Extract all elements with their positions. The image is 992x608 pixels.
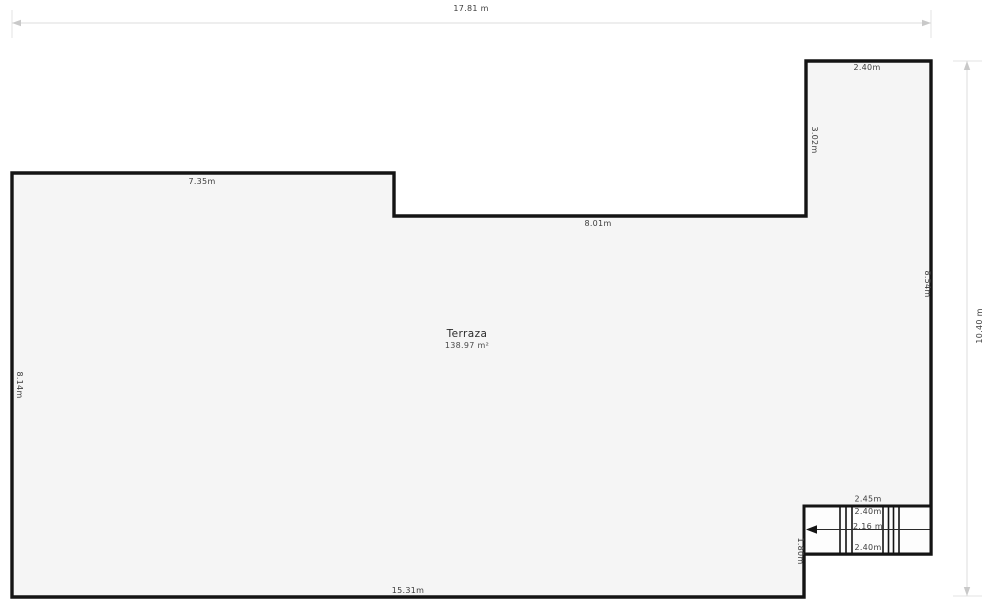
room-area: 138.97 m² bbox=[445, 341, 489, 350]
dimension-label-top-total: 17.81 m bbox=[453, 4, 488, 13]
room-name: Terraza bbox=[446, 328, 488, 340]
dimension-arrow-down-icon bbox=[964, 587, 970, 596]
dimension-arrow-right-icon bbox=[922, 20, 931, 26]
dimension-arrow-left-icon bbox=[12, 20, 21, 26]
floorplan-canvas: 17.81 m 10.40 m Terraza bbox=[0, 0, 992, 608]
dimension-label-bottom-edge: 15.31m bbox=[392, 586, 425, 595]
dimension-label-middle-edge: 8.01m bbox=[584, 219, 611, 228]
dimension-arrow-up-icon bbox=[964, 61, 970, 70]
dimension-label-stair-run-bottom: 2.40m bbox=[854, 543, 881, 552]
dimension-label-right-total: 10.40 m bbox=[975, 308, 984, 343]
floorplan-drawing: 17.81 m 10.40 m Terraza bbox=[0, 0, 992, 608]
dimension-label-left-edge: 8.14m bbox=[15, 371, 24, 398]
room-label: Terraza 138.97 m² bbox=[445, 328, 489, 350]
dimension-label-upper-right-width: 2.40m bbox=[853, 63, 880, 72]
dimension-label-right-edge: 8.54m bbox=[923, 270, 932, 297]
dimension-right-total: 10.40 m bbox=[953, 61, 984, 596]
dimension-label-stair-arrow-length: 2.16 m bbox=[853, 522, 883, 531]
dimension-label-stair-run-top: 2.40m bbox=[854, 507, 881, 516]
dimension-label-stair-side-height: 1.80m bbox=[796, 537, 805, 564]
dimension-label-upper-right-height: 3.02m bbox=[810, 126, 819, 153]
dimension-label-top-left-edge: 7.35m bbox=[188, 177, 215, 186]
dimension-top-total: 17.81 m bbox=[12, 4, 931, 38]
dimension-label-stair-width: 2.45m bbox=[854, 495, 881, 504]
